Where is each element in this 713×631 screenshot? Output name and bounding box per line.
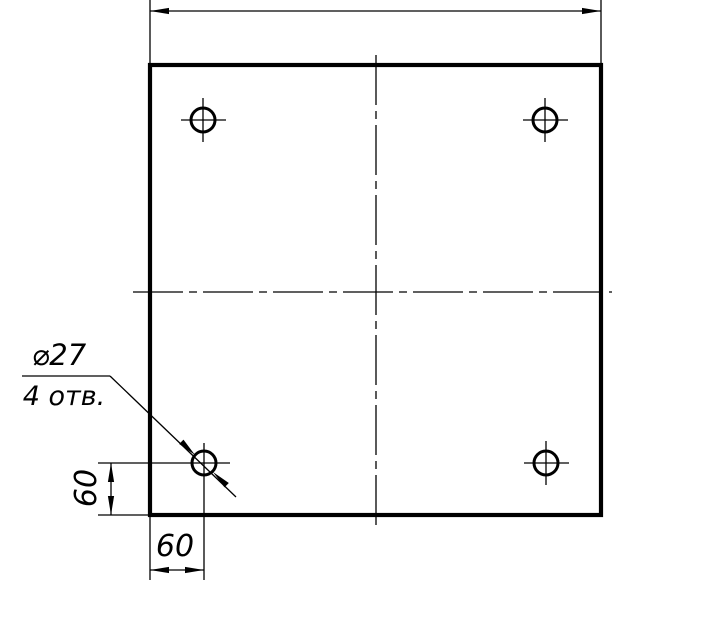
- drawing-canvas: 6060⌀274 отв.: [0, 0, 713, 631]
- dim-bottom-arrow-right: [185, 567, 204, 573]
- dim-top-arrow-left: [150, 8, 169, 14]
- callout-arrow-lower: [211, 470, 229, 488]
- callout-arrow-upper: [179, 440, 197, 458]
- dim-bottom-arrow-left: [150, 567, 169, 573]
- callout-diameter-label: ⌀27: [32, 338, 87, 372]
- dim-bottom-label: 60: [156, 529, 194, 564]
- callout-count-label: 4 отв.: [23, 381, 106, 412]
- dim-left-arrow-top: [108, 463, 114, 482]
- dim-top-arrow-right: [582, 8, 601, 14]
- technical-drawing-svg: 6060⌀274 отв.: [0, 0, 713, 631]
- callout-leader: [110, 376, 236, 497]
- dim-left-arrow-bottom: [108, 496, 114, 515]
- dim-left-label: 60: [69, 469, 104, 507]
